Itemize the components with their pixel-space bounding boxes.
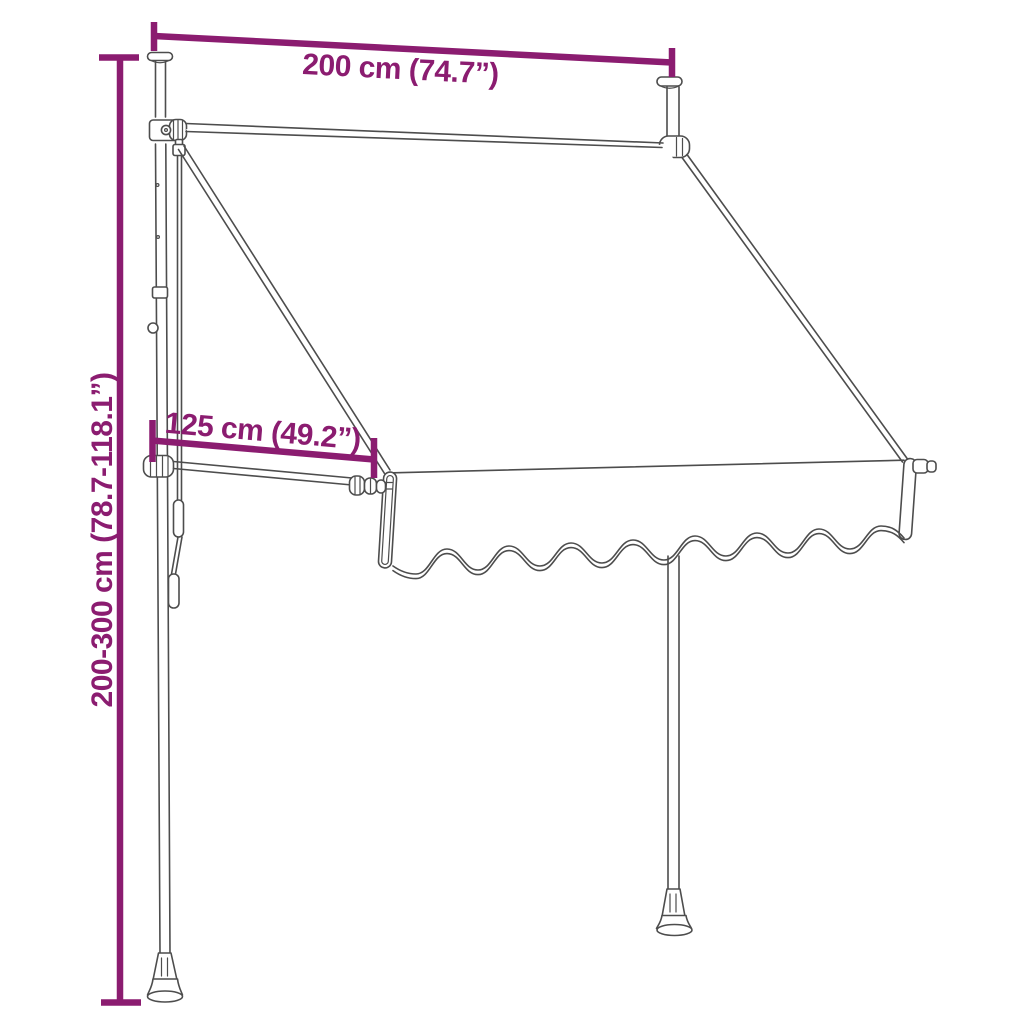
roller-end-stub (913, 460, 936, 474)
projection-dimension: 125 cm (49.2”) (152, 407, 374, 478)
arm-end-fitting (350, 476, 365, 495)
support-arm (174, 462, 393, 496)
height-dimension: 200-300 cm (78.7-118.1”) (86, 58, 141, 1003)
height-dimension-label: 200-300 cm (78.7-118.1”) (86, 373, 119, 708)
right-pole-top-cap (657, 77, 682, 86)
crank-grip-lower (169, 574, 180, 608)
left-pole-foot (153, 953, 177, 980)
pole-hole (156, 184, 159, 187)
awning (179, 124, 937, 579)
crank-handle (169, 156, 184, 608)
awning-diagram-svg: 200 cm (74.7”) 125 cm (49.2”) 200-300 cm… (0, 0, 1024, 1024)
crank-rod (178, 156, 182, 500)
product-dimension-diagram: 200 cm (74.7”) 125 cm (49.2”) 200-300 cm… (0, 0, 1024, 1024)
crank-grip-upper (174, 500, 184, 537)
right-pole-foot (662, 889, 685, 917)
left-pole-top-cap (148, 53, 173, 61)
pole-knob (148, 323, 158, 333)
pole-hole (157, 236, 160, 239)
arm-clamp-collar (144, 456, 174, 478)
clamp-bolt (161, 125, 170, 134)
pole-collar (153, 287, 168, 298)
arm-tube (174, 462, 353, 486)
width-dimension: 200 cm (74.7”) (154, 22, 672, 91)
